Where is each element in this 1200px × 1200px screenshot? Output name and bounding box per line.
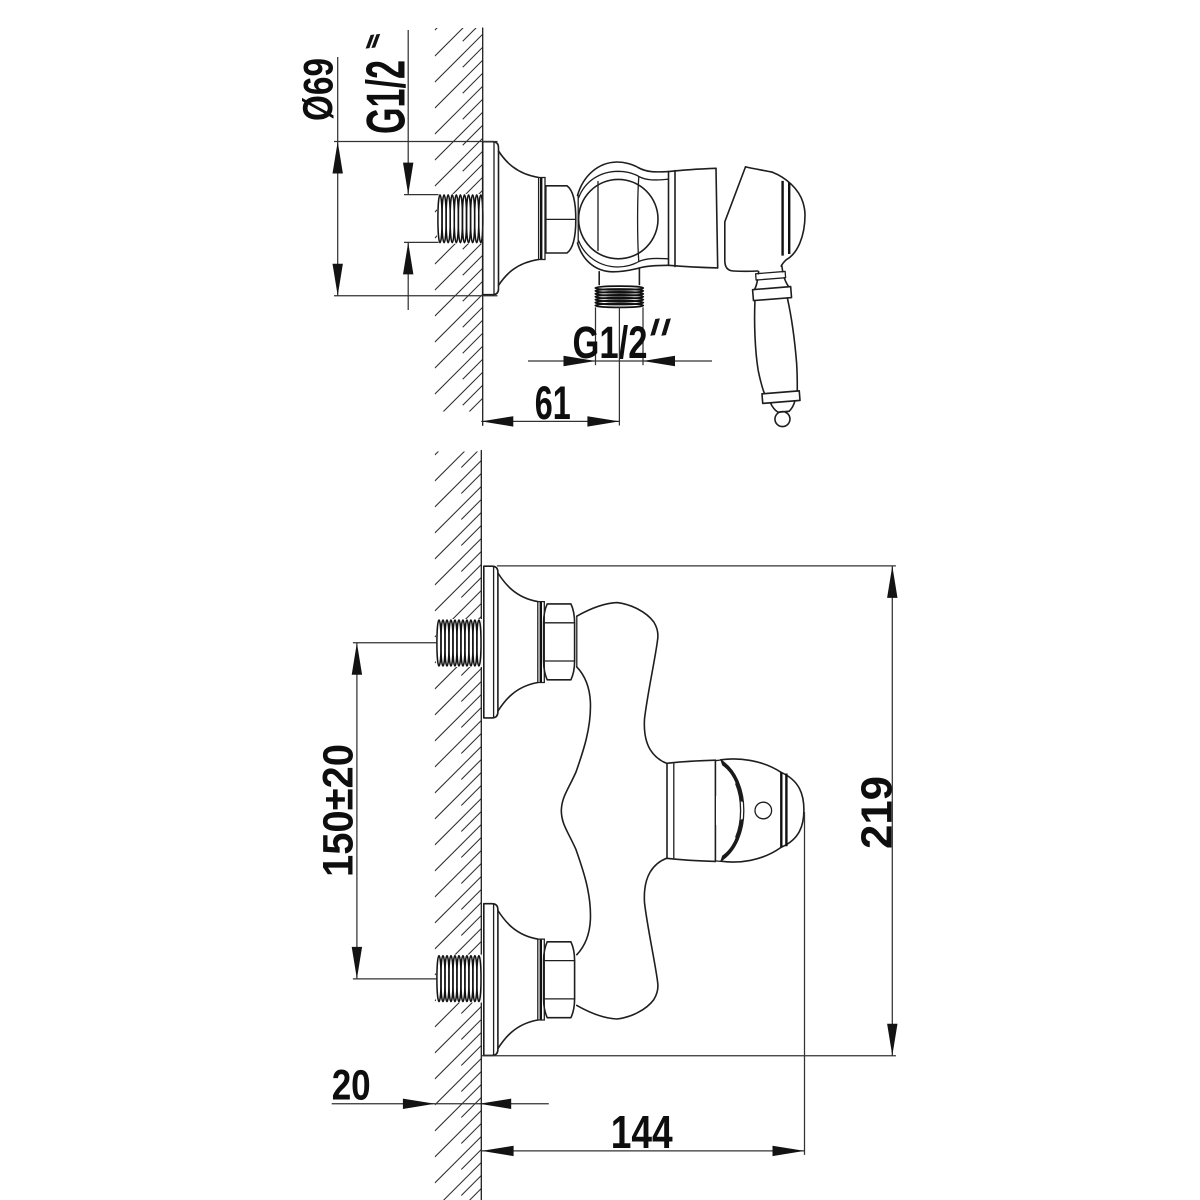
svg-text:G1/2: G1/2 <box>355 60 417 134</box>
svg-text:20: 20 <box>332 1063 371 1110</box>
svg-text:61: 61 <box>535 376 571 429</box>
svg-text:219: 219 <box>852 776 901 849</box>
svg-text:G1/2: G1/2 <box>573 317 648 368</box>
svg-text:144: 144 <box>611 1106 673 1158</box>
svg-text:Ø69: Ø69 <box>295 58 342 121</box>
svg-text:150±20: 150±20 <box>315 744 363 877</box>
